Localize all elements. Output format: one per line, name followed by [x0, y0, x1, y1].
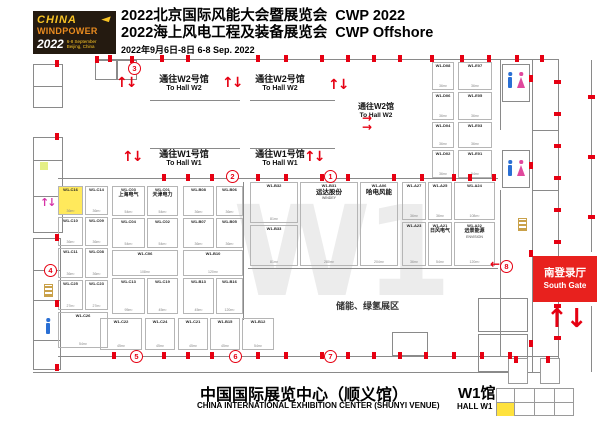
door-marker [468, 174, 472, 181]
door-marker [430, 55, 434, 62]
booth-code: W1-C13 [121, 280, 136, 285]
booth-code: W1-C09 [89, 219, 104, 224]
booth-size: 36m² [410, 214, 418, 218]
wall [532, 130, 558, 131]
gate-number-7: 7 [324, 350, 337, 363]
door-marker [508, 352, 512, 359]
south-gate-badge: 南登录厅 South Gate [533, 256, 597, 302]
booth-W1-D06: W1-D0636m² [432, 92, 454, 120]
booth-size: 54m² [79, 342, 87, 346]
booth-code: W1-B12 [251, 320, 266, 325]
title-line-2: 2022海上风电工程及装备展览会CWP Offshore [121, 25, 433, 42]
booth-W1-D02: W1-D0236m² [432, 150, 454, 178]
booth-code: W1-D02 [436, 152, 451, 157]
booth-W1-A06: W1-A06哈电风能204m² [360, 182, 398, 266]
gate-number-8: 8 [500, 260, 513, 273]
door-marker [186, 55, 190, 62]
door-marker [55, 234, 59, 241]
door-marker [515, 55, 519, 62]
booth-W1-C22: W1-C2245m² [100, 318, 142, 350]
door-marker [554, 144, 561, 148]
updown-arrows-icon: ↑↓ [122, 150, 141, 164]
booth-W1-C08: W1-C0836m² [85, 248, 108, 278]
door-marker [540, 55, 544, 62]
door-marker [284, 352, 288, 359]
booth-W1-C14: W1-C1436m² [85, 186, 108, 215]
booth-W1-B31: W1-B31运达股份WINDEY280m² [300, 182, 358, 266]
door-marker [398, 55, 402, 62]
door-marker [55, 133, 59, 140]
storage-hydrogen-zone-label: 储能、绿氢展区 [336, 299, 399, 312]
door-marker [186, 352, 190, 359]
booth-size: 36m² [439, 142, 447, 146]
door-marker [420, 174, 424, 181]
exhibitor-name-en: WINDEY [322, 196, 336, 200]
booth-W1-C21: W1-C2145m² [178, 318, 208, 350]
logo-brand-line2: WINDPOWER [37, 26, 112, 37]
door-marker [320, 55, 324, 62]
wall [243, 182, 244, 320]
title1-cn: 2022北京国际风能大会暨展览会 [121, 8, 327, 24]
booth-W1-B32: W1-B3281m² [250, 182, 298, 223]
to-hall-w2-label: 通往W2号馆 To Hall W2 [248, 74, 312, 93]
door-marker [55, 60, 59, 67]
updown-arrows-icon: ↑↓ [40, 197, 54, 208]
logo-brand-line1: CHINA [37, 14, 112, 26]
door-marker [256, 352, 260, 359]
booth-size: 36m² [93, 209, 101, 213]
to-hall-w1-cn: 通往W1号馆 [248, 149, 312, 160]
booth-W1-B33: W1-B3381m² [250, 225, 298, 266]
booth-size: 36m² [439, 172, 447, 176]
booth-code: W1-C06 [138, 252, 153, 257]
booth-W1-C01: W1-C01天津电力54m² [147, 186, 178, 216]
booth-code: W1-A24 [467, 184, 482, 189]
cwp-logo: CHINA WINDPOWER 2022 6-8 September Beiji… [33, 11, 116, 54]
updown-arrows-icon: ↑↓ [116, 76, 135, 90]
updown-arrows-icon: ↑↓ [328, 78, 347, 92]
exhibitor-name: 哈电风能 [366, 189, 392, 196]
booth-code: W1-C25 [63, 282, 78, 287]
booth-code: W1-B15 [218, 320, 233, 325]
booth-W1-C03: W1-C03上海电气54m² [112, 186, 145, 216]
booth-code: W1-A27 [407, 184, 422, 189]
booth-code: W1-A25 [433, 184, 448, 189]
booth-W1-C25: W1-C2527m² [58, 280, 83, 310]
booth-size: 36m² [436, 214, 444, 218]
wall [250, 100, 335, 101]
booth-size: 36m² [67, 209, 75, 213]
booth-code: W1-C11 [63, 250, 77, 255]
booth-W1-D04: W1-D0436m² [432, 122, 454, 148]
booth-W1-C04: W1-C0454m² [112, 218, 145, 248]
booth-code: W1-E05 [468, 94, 482, 99]
mens-restroom-icon [506, 72, 514, 88]
mens-restroom-icon [44, 318, 52, 334]
booth-code: W1-B06 [222, 188, 237, 193]
booth-code: W1-C24 [153, 320, 168, 325]
booth-W1-B10: W1-B10120m² [183, 250, 243, 276]
booth-W1-B12: W1-B1254m² [242, 318, 274, 350]
gate-number-2: 2 [226, 170, 239, 183]
gate-number-4: 4 [44, 264, 57, 277]
booth-code: W1-B32 [267, 184, 282, 189]
booth-code: W1-C16 [63, 188, 78, 193]
booth-W1-A22: W1-A22远景能源ENVISION120m² [454, 222, 495, 266]
booth-code: W1-C08 [89, 250, 104, 255]
south-gate-cn: 南登录厅 [533, 267, 597, 281]
to-hall-w1-en: To Hall W1 [248, 160, 312, 168]
door-marker [424, 352, 428, 359]
booth-W1-C16: W1-C1636m² [58, 186, 83, 215]
booth-size: 45m² [117, 344, 125, 348]
door-marker [160, 55, 164, 62]
gate-number-5: 5 [130, 350, 143, 363]
door-marker [529, 340, 533, 347]
door-marker [284, 55, 288, 62]
minimap-hall-block [508, 358, 528, 384]
updown-arrows-icon: ↑↓ [546, 306, 586, 332]
door-marker [588, 215, 595, 219]
booth-size: 120m² [225, 308, 235, 312]
booth-size: 36m² [93, 240, 101, 244]
wall [33, 372, 560, 373]
to-hall-w2-en: To Hall W2 [152, 85, 216, 93]
wall [532, 190, 558, 191]
logo-dates: 6-8 September Beijing, China [67, 39, 97, 50]
door-marker [210, 352, 214, 359]
booth-W1-C11: W1-C1136m² [58, 248, 83, 278]
logo-bottom-row: 2022 6-8 September Beijing, China [37, 38, 112, 50]
logo-date-range: 6-8 September [67, 39, 97, 44]
booth-size: 54m² [471, 172, 479, 176]
booth-size: 45m² [159, 308, 167, 312]
minimap-hall-block [540, 358, 560, 384]
booth-W1-C09: W1-C0936m² [85, 217, 108, 246]
door-marker [256, 174, 260, 181]
to-hall-w2-cn: 通往W2号馆 [152, 74, 216, 85]
booth-size: 108m² [470, 214, 480, 218]
booth-W1-B08: W1-B0836m² [183, 186, 214, 216]
booth-size: 36m² [471, 142, 479, 146]
booth-size: 120m² [208, 270, 218, 274]
gate-number-6: 6 [229, 350, 242, 363]
door-marker [346, 55, 350, 62]
door-marker [554, 80, 561, 84]
minimap-hall-w1-highlight [497, 403, 514, 416]
wall [248, 268, 498, 269]
wall [500, 60, 501, 130]
booth-W1-A21: W1-A21日风电气54m² [428, 222, 452, 266]
womens-restroom-icon [517, 72, 525, 88]
booth-code: W1-C22 [114, 320, 129, 325]
booth-size: 45m² [221, 344, 229, 348]
booth-size: 120m² [470, 260, 480, 264]
south-gate-en: South Gate [533, 281, 597, 291]
booth-W1-E05: W1-E0536m² [458, 92, 492, 120]
door-marker [529, 162, 533, 169]
booth-code: W1-C19 [155, 280, 170, 285]
title1-en: CWP 2022 [335, 8, 405, 24]
door-marker [554, 176, 561, 180]
door-marker [162, 174, 166, 181]
door-marker [372, 352, 376, 359]
booth-size: 95m² [125, 308, 133, 312]
door-marker [529, 75, 533, 82]
to-hall-w1-label: 通往W1号馆 To Hall W1 [248, 149, 312, 168]
booth-size: 36m² [471, 114, 479, 118]
booth-code: W1-B08 [191, 188, 206, 193]
minimap-door-marker [546, 356, 550, 363]
door-marker [162, 352, 166, 359]
booth-W1-B05: W1-B0536m² [216, 218, 243, 248]
booth-size: 36m² [471, 84, 479, 88]
escalator-icon [44, 284, 53, 297]
door-marker [256, 55, 260, 62]
booth-W1-E01: W1-E0154m² [458, 150, 492, 178]
booth-code: W1-B16 [222, 280, 237, 285]
booth-code: W1-B07 [191, 220, 206, 225]
to-hall-w2-en: To Hall W2 [248, 85, 312, 93]
booth-size: 36m² [195, 242, 203, 246]
escalator-icon [518, 218, 527, 231]
logo-china-text: CHINA [37, 14, 77, 26]
service-room [478, 298, 528, 332]
to-hall-w2-cn: 通往W2号馆 [248, 74, 312, 85]
booth-code: W1-B13 [191, 280, 206, 285]
door-marker [554, 112, 561, 116]
door-marker [372, 55, 376, 62]
booth-W1-C24: W1-C2445m² [145, 318, 175, 350]
door-marker [460, 55, 464, 62]
door-marker [452, 174, 456, 181]
booth-W1-E03: W1-E0336m² [458, 122, 492, 148]
bird-icon [101, 14, 110, 22]
door-marker [108, 55, 112, 62]
door-marker [186, 174, 190, 181]
door-marker [112, 352, 116, 359]
exhibitor-name-en: ENVISION [466, 235, 483, 239]
service-area-marker [40, 162, 48, 170]
booth-W1-B16: W1-B16120m² [216, 278, 243, 314]
booth-code: W1-B05 [222, 220, 237, 225]
door-marker [588, 95, 595, 99]
booth-size: 45m² [156, 344, 164, 348]
booth-code: W1-E03 [468, 124, 482, 129]
booth-size: 36m² [67, 240, 75, 244]
direction-arrow-icon: → [362, 121, 370, 133]
exhibitor-name: 运达股份 [316, 189, 342, 196]
door-marker [588, 155, 595, 159]
door-marker [346, 352, 350, 359]
booth-size: 36m² [439, 114, 447, 118]
to-hall-w2-label: 通往W2号馆 To Hall W2 [152, 74, 216, 93]
wall [33, 340, 61, 341]
door-marker [452, 352, 456, 359]
booth-code: W1-C14 [89, 188, 104, 193]
booth-code: W1-C10 [63, 219, 78, 224]
to-hall-w1-en: To Hall W1 [152, 160, 216, 168]
booth-code: W1-D04 [436, 124, 451, 129]
booth-W1-C23: W1-C2327m² [85, 280, 108, 310]
booth-size: 45m² [195, 308, 203, 312]
updown-arrows-icon: ↑↓ [304, 150, 323, 164]
booth-W1-A23: W1-A2336m² [402, 222, 426, 266]
booth-size: 36m² [195, 210, 203, 214]
title2-cn: 2022海上风电工程及装备展览会 [121, 25, 327, 41]
booth-size: 27m² [67, 304, 75, 308]
to-hall-w2-side-label: 通往W2馆 To Hall W2 [352, 102, 400, 119]
booth-size: 54m² [125, 242, 133, 246]
mens-restroom-icon [506, 160, 514, 176]
booth-size: 54m² [125, 210, 133, 214]
booth-W1-B06: W1-B0636m² [216, 186, 243, 216]
door-marker [284, 174, 288, 181]
booth-code: W1-C26 [76, 314, 91, 319]
booth-size: 36m² [67, 272, 75, 276]
door-marker [554, 336, 561, 340]
title2-en: CWP Offshore [335, 25, 433, 41]
booth-size: 45m² [189, 344, 197, 348]
venue-name-en: CHINA INTERNATIONAL EXHIBITION CENTER (S… [197, 401, 440, 410]
booth-W1-E07: W1-E0736m² [458, 62, 492, 90]
booth-size: 54m² [254, 344, 262, 348]
booth-code: W1-C04 [121, 220, 136, 225]
booth-W1-A24: W1-A24108m² [454, 182, 495, 220]
to-hall-w2-cn: 通往W2馆 [352, 102, 400, 112]
booth-W1-D08: W1-D0836m² [432, 62, 454, 90]
floorplan-page: CHINA WINDPOWER 2022 6-8 September Beiji… [0, 0, 600, 428]
booth-size: 81m² [270, 260, 278, 264]
booth-W1-C13: W1-C1395m² [112, 278, 145, 314]
wall [33, 160, 63, 161]
booth-W1-A27: W1-A2736m² [402, 182, 426, 220]
wall [58, 178, 498, 179]
booth-size: 27m² [93, 304, 101, 308]
gate-number-1: 1 [324, 170, 337, 183]
booth-size: 36m² [410, 260, 418, 264]
booth-W1-C19: W1-C1945m² [147, 278, 178, 314]
event-titles: 2022北京国际风能大会暨展览会CWP 2022 2022海上风电工程及装备展览… [121, 8, 433, 56]
to-hall-w2-en: To Hall W2 [352, 112, 400, 120]
door-marker [392, 174, 396, 181]
door-marker [210, 174, 214, 181]
hall-name-en: HALL W1 [457, 402, 492, 411]
booth-W1-B13: W1-B1345m² [183, 278, 214, 314]
booth-code: W1-E07 [468, 64, 482, 69]
door-marker [346, 174, 350, 181]
booth-code: W1-D06 [436, 94, 451, 99]
booth-size: 280m² [324, 260, 334, 264]
booth-size: 36m² [226, 242, 234, 246]
booth-W1-B07: W1-B0736m² [183, 218, 214, 248]
booth-size: 54m² [159, 242, 167, 246]
booth-size: 81m² [270, 217, 278, 221]
title-line-1: 2022北京国际风能大会暨展览会CWP 2022 [121, 8, 433, 25]
wall [532, 59, 533, 372]
door-marker [55, 300, 59, 307]
booth-W1-C10: W1-C1036m² [58, 217, 83, 246]
booth-code: W1-C23 [89, 282, 104, 287]
exhibitor-name: 上海电气 [118, 193, 138, 199]
door-marker [554, 208, 561, 212]
wall [33, 86, 63, 87]
door-marker [55, 364, 59, 371]
booth-size: 204m² [374, 260, 384, 264]
wall [150, 100, 240, 101]
booth-W1-C02: W1-C0254m² [147, 218, 178, 248]
booth-W1-C06: W1-C06108m² [112, 250, 178, 276]
booth-code: W1-C21 [186, 320, 201, 325]
to-hall-w1-label: 通往W1号馆 To Hall W1 [152, 149, 216, 168]
door-marker [487, 55, 491, 62]
logo-place: Beijing, China [67, 44, 95, 49]
door-marker [398, 352, 402, 359]
event-dates: 2022年9月6日-8日 6-8 Sep. 2022 [121, 43, 433, 56]
direction-arrow-icon: ← [490, 258, 498, 270]
door-marker [492, 174, 496, 181]
booth-size: 108m² [140, 270, 150, 274]
booth-size: 54m² [159, 210, 167, 214]
booth-W1-B15: W1-B1545m² [210, 318, 240, 350]
gate-number-3: 3 [128, 62, 141, 75]
top-left-booth-block [95, 60, 117, 80]
exhibitor-name: 天津电力 [152, 193, 172, 199]
booth-code: W1-B33 [267, 227, 282, 232]
booth-size: 54m² [436, 260, 444, 264]
door-marker [95, 56, 99, 63]
minimap-door-marker [514, 356, 518, 363]
door-marker [554, 240, 561, 244]
booth-code: W1-C02 [155, 220, 170, 225]
exhibitor-name: 日风电气 [430, 229, 450, 235]
booth-size: 36m² [226, 210, 234, 214]
booth-code: W1-B10 [206, 252, 221, 257]
womens-restroom-icon [517, 160, 525, 176]
updown-arrows-icon: ↑↓ [222, 76, 241, 90]
logo-year: 2022 [37, 38, 64, 50]
booth-size: 36m² [439, 84, 447, 88]
booth-size: 36m² [93, 272, 101, 276]
booth-code: W1-D08 [436, 64, 451, 69]
venue-minimap [490, 356, 598, 422]
to-hall-w1-cn: 通往W1号馆 [152, 149, 216, 160]
booth-code: W1-E01 [468, 152, 482, 157]
booth-W1-A25: W1-A2536m² [428, 182, 452, 220]
booth-code: W1-A23 [407, 224, 422, 229]
door-marker [480, 352, 484, 359]
